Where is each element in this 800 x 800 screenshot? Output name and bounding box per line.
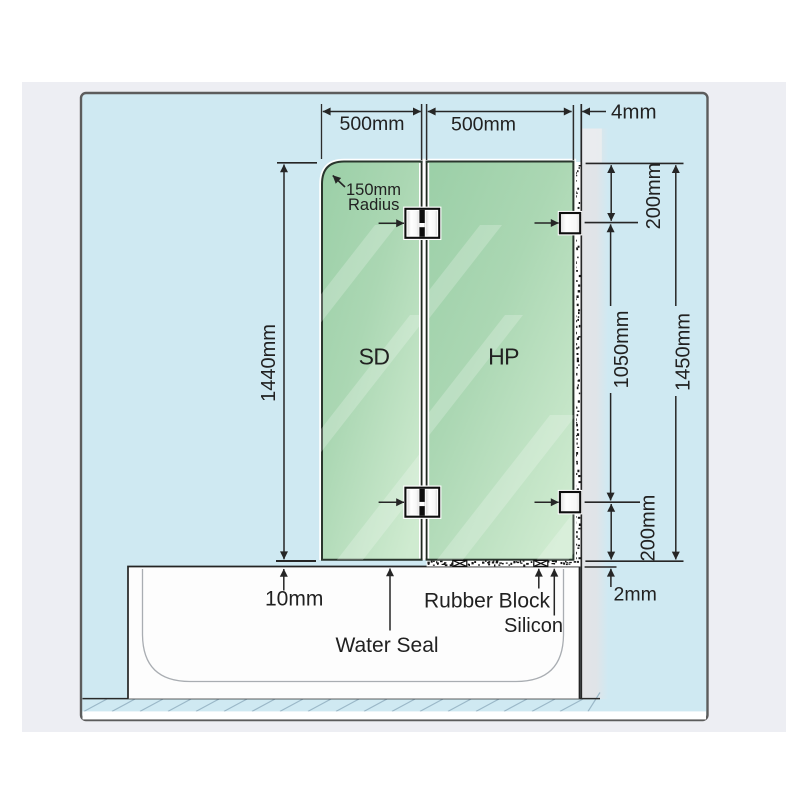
svg-text:500mm: 500mm — [339, 113, 404, 135]
svg-text:Silicon: Silicon — [504, 615, 563, 637]
svg-text:Radius: Radius — [348, 196, 399, 214]
svg-text:1450mm: 1450mm — [673, 313, 695, 391]
svg-text:200mm: 200mm — [643, 163, 665, 230]
svg-text:500mm: 500mm — [451, 114, 516, 136]
svg-text:1440mm: 1440mm — [258, 324, 280, 402]
svg-text:Rubber Block: Rubber Block — [424, 590, 551, 613]
svg-text:2mm: 2mm — [614, 584, 657, 606]
svg-text:Water Seal: Water Seal — [335, 634, 438, 657]
svg-text:HP: HP — [488, 344, 519, 370]
svg-text:10mm: 10mm — [265, 588, 323, 611]
svg-text:SD: SD — [359, 344, 390, 370]
svg-text:1050mm: 1050mm — [611, 311, 633, 389]
svg-text:4mm: 4mm — [611, 100, 657, 123]
svg-text:200mm: 200mm — [638, 495, 660, 562]
